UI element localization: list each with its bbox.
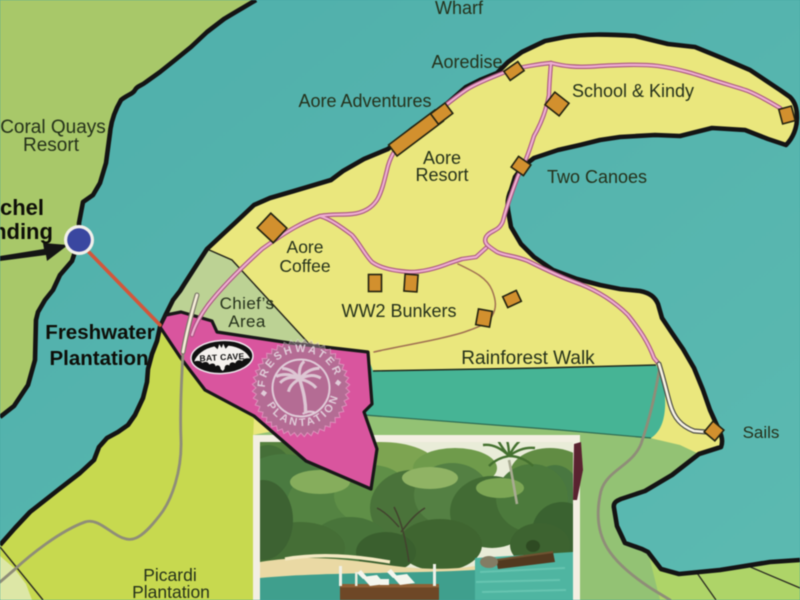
svg-text:Area: Area bbox=[228, 312, 266, 331]
svg-text:Aoredise: Aoredise bbox=[431, 52, 502, 72]
svg-text:School & Kindy: School & Kindy bbox=[572, 81, 694, 101]
svg-text:WW2 Bunkers: WW2 Bunkers bbox=[341, 301, 456, 321]
svg-text:Sails: Sails bbox=[743, 423, 780, 442]
svg-text:Two Canoes: Two Canoes bbox=[547, 167, 647, 187]
svg-text:Coffee: Coffee bbox=[279, 256, 330, 276]
svg-text:nding: nding bbox=[0, 219, 53, 244]
svg-text:Aore Adventures: Aore Adventures bbox=[298, 91, 431, 111]
svg-text:Resort: Resort bbox=[415, 165, 468, 185]
svg-text:Plantation: Plantation bbox=[132, 582, 210, 600]
svg-text:Wharf: Wharf bbox=[435, 0, 484, 18]
svg-text:Resort: Resort bbox=[23, 135, 80, 156]
svg-text:Chief’s: Chief’s bbox=[220, 294, 275, 313]
svg-text:chel: chel bbox=[0, 195, 44, 220]
svg-text:Aore: Aore bbox=[287, 237, 324, 257]
svg-text:Rainforest Walk: Rainforest Walk bbox=[461, 348, 595, 369]
svg-text:Freshwater: Freshwater bbox=[45, 321, 154, 344]
svg-text:Plantation: Plantation bbox=[49, 347, 148, 370]
